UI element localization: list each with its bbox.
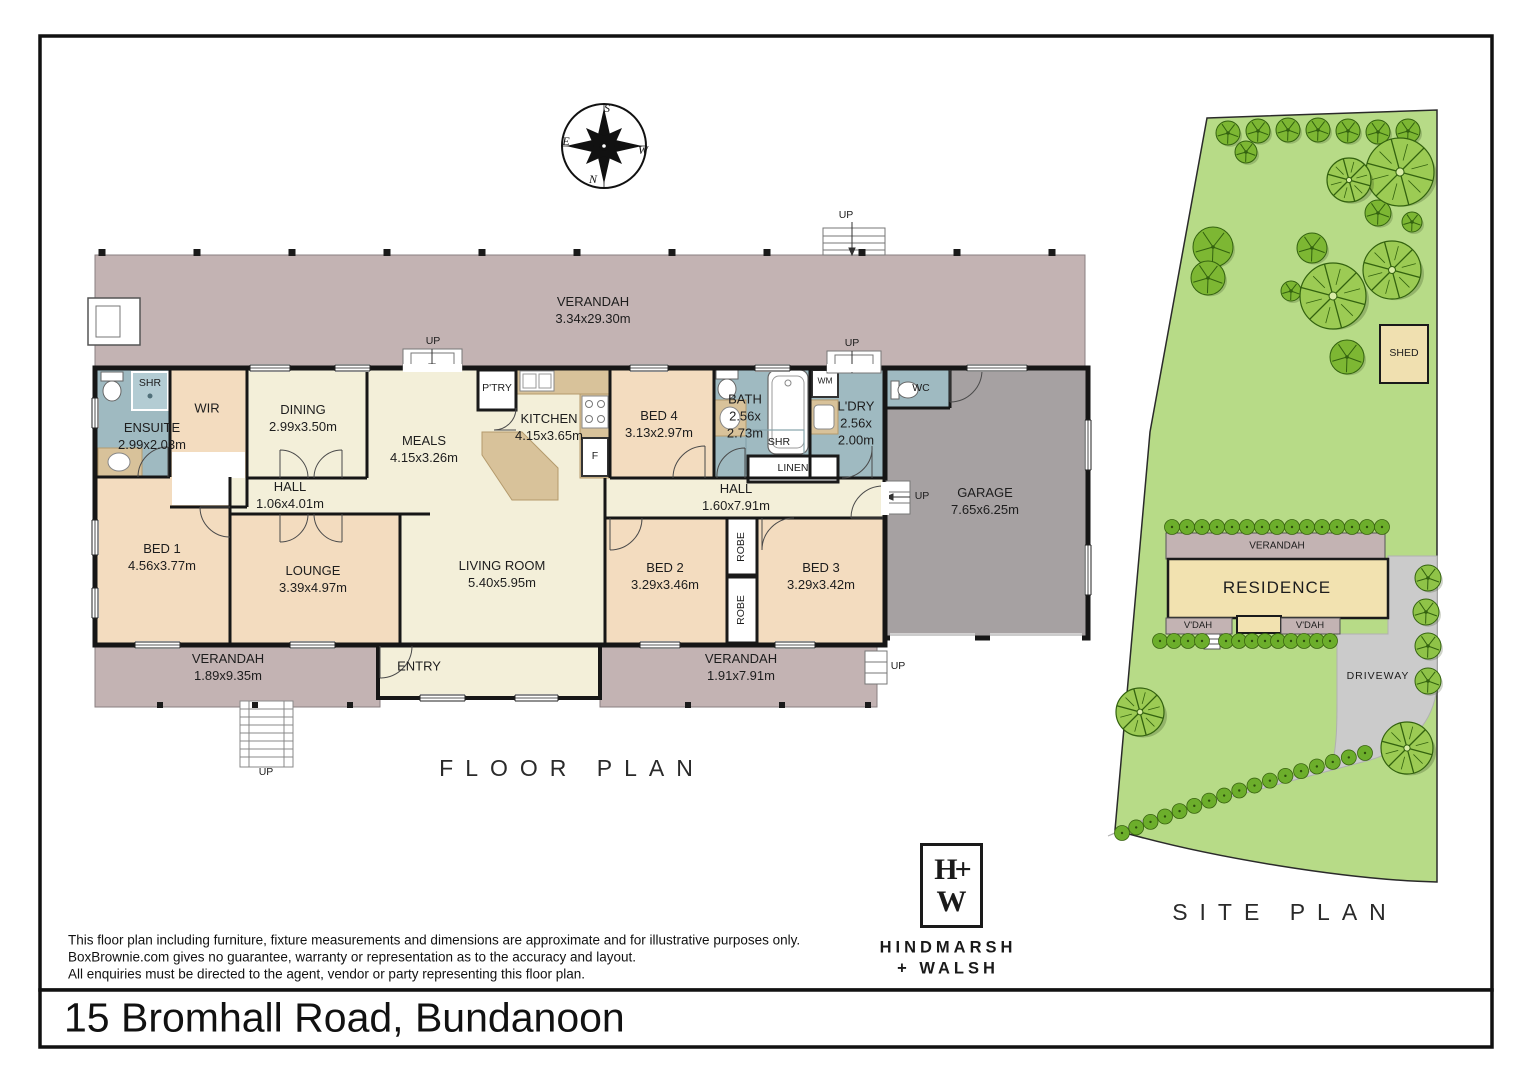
label-fridge: F xyxy=(592,450,598,464)
property-address: 15 Bromhall Road, Bundanoon xyxy=(64,995,625,1042)
label-wm: WM xyxy=(817,375,832,386)
compass-north: N xyxy=(589,172,597,188)
laundry-tub xyxy=(814,405,834,429)
label-bed2: BED 23.29x3.46m xyxy=(631,560,699,594)
label-up-garage: UP xyxy=(915,490,930,504)
label-hall2: HALL1.60x7.91m xyxy=(702,481,770,515)
label-up-top: UP xyxy=(839,209,854,223)
label-shr-bath: SHR xyxy=(768,436,790,450)
floorplan-sheet: S E W N VERANDAH3.34x29.30m UP UP UP ENS… xyxy=(0,0,1534,1085)
label-meals: MEALS4.15x3.26m xyxy=(390,433,458,467)
floor-plan-title: FLOOR PLAN xyxy=(439,754,705,784)
label-up-laundry: UP xyxy=(845,337,860,351)
label-verandah-top: VERANDAH3.34x29.30m xyxy=(555,294,630,328)
logo-monogram-w: W xyxy=(937,886,967,918)
label-pantry: P'TRY xyxy=(482,382,512,396)
site-plan-title: SITE PLAN xyxy=(1172,898,1398,928)
label-bed1: BED 14.56x3.77m xyxy=(128,541,196,575)
label-verandah-bl: VERANDAH1.89x9.35m xyxy=(192,651,264,685)
ensuite-vanity xyxy=(108,453,130,471)
logo-name-line2: + WALSH xyxy=(897,960,999,979)
label-bath: BATH2.56x2.73m xyxy=(727,392,763,443)
label-living: LIVING ROOM5.40x5.95m xyxy=(459,558,546,592)
label-verandah-br: VERANDAH1.91x7.91m xyxy=(705,651,777,685)
label-hall1: HALL1.06x4.01m xyxy=(256,479,324,513)
disclaimer-line3: All enquiries must be directed to the ag… xyxy=(68,967,585,982)
logo-name-line1: HINDMARSH xyxy=(880,939,1017,958)
label-shr-ensuite: SHR xyxy=(139,377,161,391)
disclaimer-line2: BoxBrownie.com gives no guarantee, warra… xyxy=(68,950,636,965)
hindmarsh-walsh-logo: H+ W xyxy=(920,843,983,928)
ensuite-toilet xyxy=(103,381,121,401)
label-site-residence: RESIDENCE xyxy=(1223,577,1331,599)
label-wc: WC xyxy=(912,382,930,396)
compass-east: E xyxy=(562,134,569,150)
label-ensuite: ENSUITE2.99x2.03m xyxy=(118,420,186,454)
label-ldry: L'DRY2.56x2.00m xyxy=(838,399,875,450)
label-up-kitchen: UP xyxy=(426,335,441,349)
label-shed: SHED xyxy=(1389,347,1418,361)
label-bed4: BED 43.13x2.97m xyxy=(625,408,693,442)
site-residence-entry xyxy=(1237,616,1281,633)
label-wir: WIR xyxy=(194,401,219,418)
label-lounge: LOUNGE3.39x4.97m xyxy=(279,563,347,597)
label-site-verandah: VERANDAH xyxy=(1249,540,1305,553)
label-up-bl: UP xyxy=(259,766,274,780)
label-robe2: ROBE xyxy=(735,595,749,625)
label-up-br: UP xyxy=(891,660,906,674)
label-robe1: ROBE xyxy=(735,532,749,562)
site-plan-graphics xyxy=(1108,110,1443,882)
disclaimer-line1: This floor plan including furniture, fix… xyxy=(68,933,800,948)
label-kitchen: KITCHEN4.15x3.65m xyxy=(515,411,583,445)
label-vdah-left: V'DAH xyxy=(1184,620,1212,632)
label-bed3: BED 33.29x3.42m xyxy=(787,560,855,594)
compass-south: S xyxy=(604,101,610,117)
label-driveway: DRIVEWAY xyxy=(1347,670,1410,684)
stove xyxy=(582,396,608,428)
logo-monogram-hplus: H+ xyxy=(934,854,968,886)
label-garage: GARAGE7.65x6.25m xyxy=(951,485,1019,519)
label-vdah-right: V'DAH xyxy=(1296,620,1324,632)
label-dining: DINING2.99x3.50m xyxy=(269,402,337,436)
label-linen: LINEN xyxy=(778,462,809,476)
compass-west: W xyxy=(638,143,648,159)
label-entry: ENTRY xyxy=(397,659,441,676)
